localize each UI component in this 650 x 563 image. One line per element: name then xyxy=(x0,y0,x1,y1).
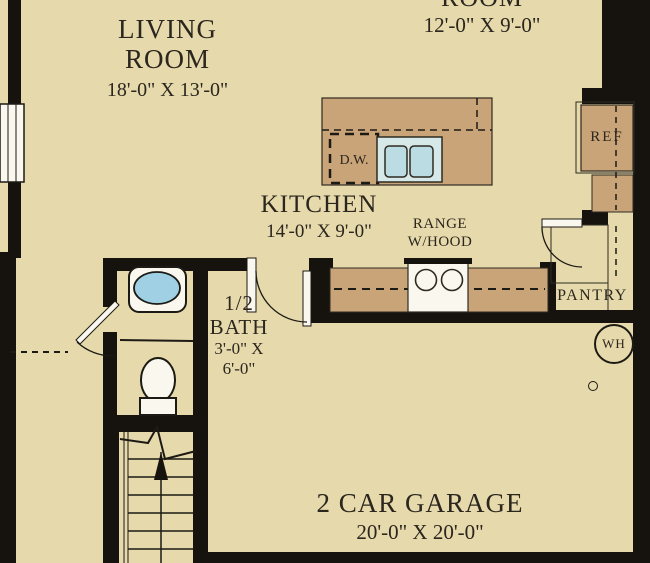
upper-room-dimensions: 12'-0" X 9'-0" xyxy=(397,14,567,38)
bath-counter-line xyxy=(120,340,193,341)
wall-right xyxy=(633,88,650,563)
garage-name: 2 CAR GARAGE xyxy=(285,488,555,518)
range-label-line2: W/HOOD xyxy=(394,233,486,251)
water-heater-label: WH xyxy=(602,336,626,352)
floor-drain-icon xyxy=(588,381,598,391)
half-bath-name2: BATH xyxy=(199,316,279,340)
half-bath-label: 1/2 BATH 3'-0" X 6'-0" xyxy=(199,292,279,379)
pantry-door xyxy=(542,219,582,267)
upper-room-name: ROOM xyxy=(397,0,567,12)
kitchen-dimensions: 14'-0" X 9'-0" xyxy=(240,221,398,242)
kitchen-sink xyxy=(377,137,442,182)
half-bath-dim2: 6'-0" xyxy=(199,359,279,379)
wall-bath-left-upper xyxy=(103,258,117,307)
range xyxy=(404,258,472,312)
half-bath-name: 1/2 xyxy=(199,292,279,316)
kitchen-island xyxy=(322,98,492,185)
living-room-name2: ROOM xyxy=(80,44,255,74)
living-room-name: LIVING xyxy=(80,14,255,44)
kitchen-label: KITCHEN 14'-0" X 9'-0" xyxy=(240,191,398,242)
stairs xyxy=(120,427,196,563)
living-room-label: LIVING ROOM 18'-0" X 13'-0" xyxy=(80,14,255,102)
dishwasher-label: D.W. xyxy=(331,153,377,169)
garage-label: 2 CAR GARAGE 20'-0" X 20'-0" xyxy=(285,488,555,545)
stairs-up-arrow-icon xyxy=(154,452,168,480)
ref-counter xyxy=(592,175,633,212)
range-label-line1: RANGE xyxy=(394,215,486,233)
kitchen-name: KITCHEN xyxy=(240,191,398,219)
garage-dimensions: 20'-0" X 20'-0" xyxy=(285,521,555,545)
wall-kitchen-stub xyxy=(309,258,333,312)
water-heater: WH xyxy=(594,324,634,364)
range-label: RANGE W/HOOD xyxy=(394,215,486,251)
refrigerator-label: REF xyxy=(581,129,633,146)
window xyxy=(0,104,24,182)
half-bath-dim1: 3'-0" X xyxy=(199,339,279,359)
pantry-label: PANTRY xyxy=(545,287,640,305)
bath-door xyxy=(10,301,119,356)
toilet xyxy=(140,358,176,415)
living-room-dimensions: 18'-0" X 13'-0" xyxy=(80,79,255,101)
floor-plan: LIVING ROOM 18'-0" X 13'-0" ROOM 12'-0" … xyxy=(0,0,650,563)
upper-room-label: ROOM 12'-0" X 9'-0" xyxy=(397,0,567,38)
bath-sink xyxy=(129,267,186,312)
wall-stairs-left xyxy=(103,432,119,563)
wall-left-lower xyxy=(0,252,16,563)
wall-bottom xyxy=(196,552,650,563)
